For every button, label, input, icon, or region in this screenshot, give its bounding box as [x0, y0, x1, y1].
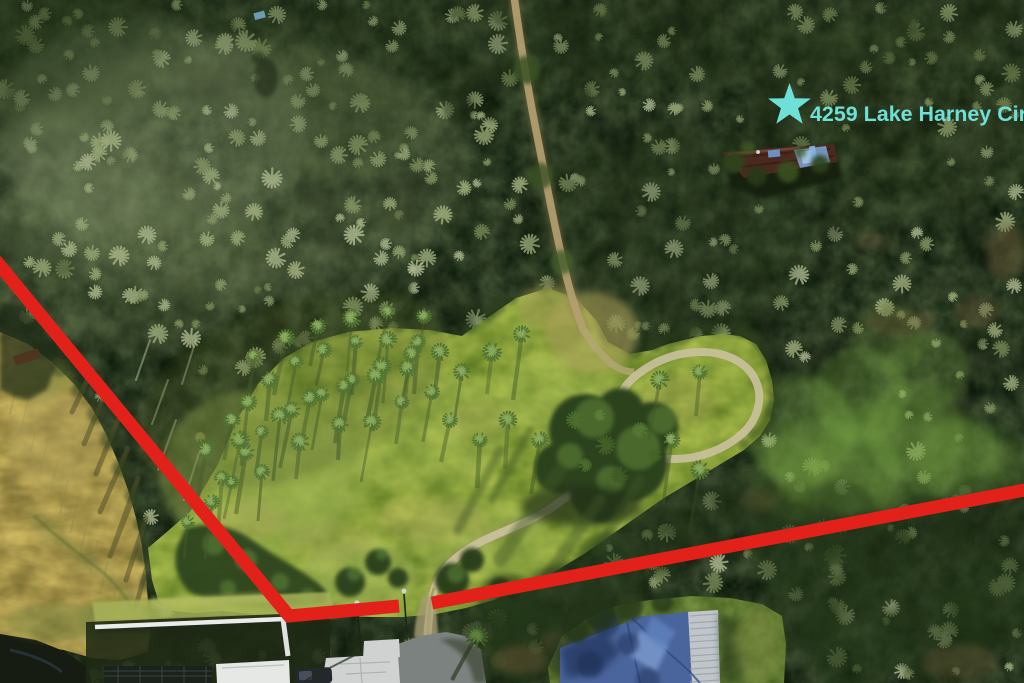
svg-text:4259 Lake Harney Cir: 4259 Lake Harney Cir	[810, 103, 1024, 126]
